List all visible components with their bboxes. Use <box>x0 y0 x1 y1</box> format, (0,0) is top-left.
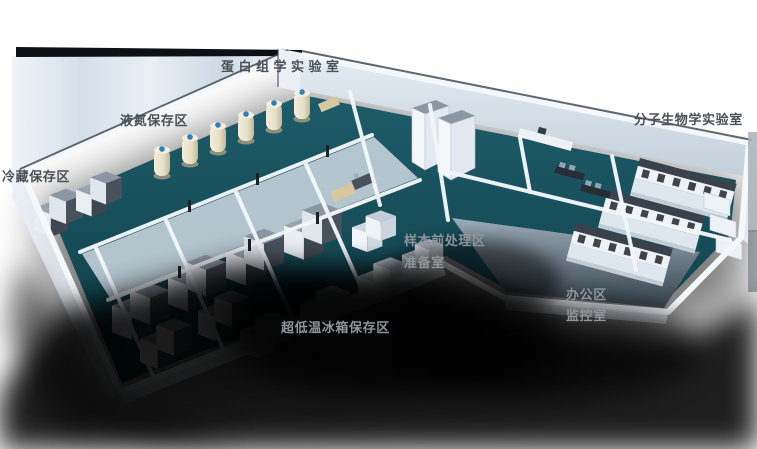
label-monitoring-room: 监控室 <box>566 309 607 323</box>
label-proteomics-lab: 蛋白组学实验室 <box>221 60 344 74</box>
floorplan-3d-render <box>0 0 757 449</box>
label-sample-pretreatment-area: 样本前处理区 <box>404 234 486 248</box>
label-molecular-biology-lab: 分子生物学实验室 <box>634 113 743 127</box>
right-edge-strip <box>748 132 757 292</box>
label-prep-room: 准备室 <box>404 256 445 270</box>
label-cold-storage: 冷藏保存区 <box>2 170 70 184</box>
screenshot-canvas: 蛋白组学实验室 液氮保存区 冷藏保存区 分子生物学实验室 样本前处理区 准备室 … <box>0 0 757 449</box>
label-ult-freezer-storage: 超低温冰箱保存区 <box>281 321 390 335</box>
label-liquid-nitrogen-storage: 液氮保存区 <box>120 114 188 128</box>
label-office-area: 办公区 <box>566 288 607 302</box>
